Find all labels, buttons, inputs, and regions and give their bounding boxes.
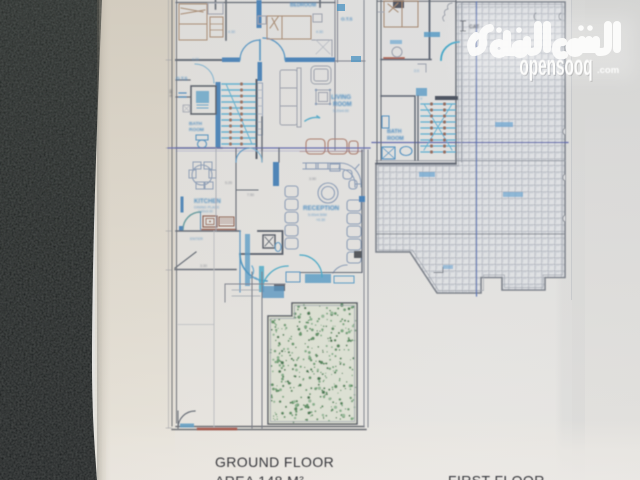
svg-text:AREA 148 M²: AREA 148 M²: [215, 473, 304, 480]
svg-text:opensooq: opensooq: [519, 49, 592, 81]
svg-text:GROUND FLOOR: GROUND FLOOR: [215, 454, 334, 470]
svg-text:.com: .com: [597, 65, 619, 76]
svg-text:FIRST FLOOR: FIRST FLOOR: [448, 473, 545, 480]
